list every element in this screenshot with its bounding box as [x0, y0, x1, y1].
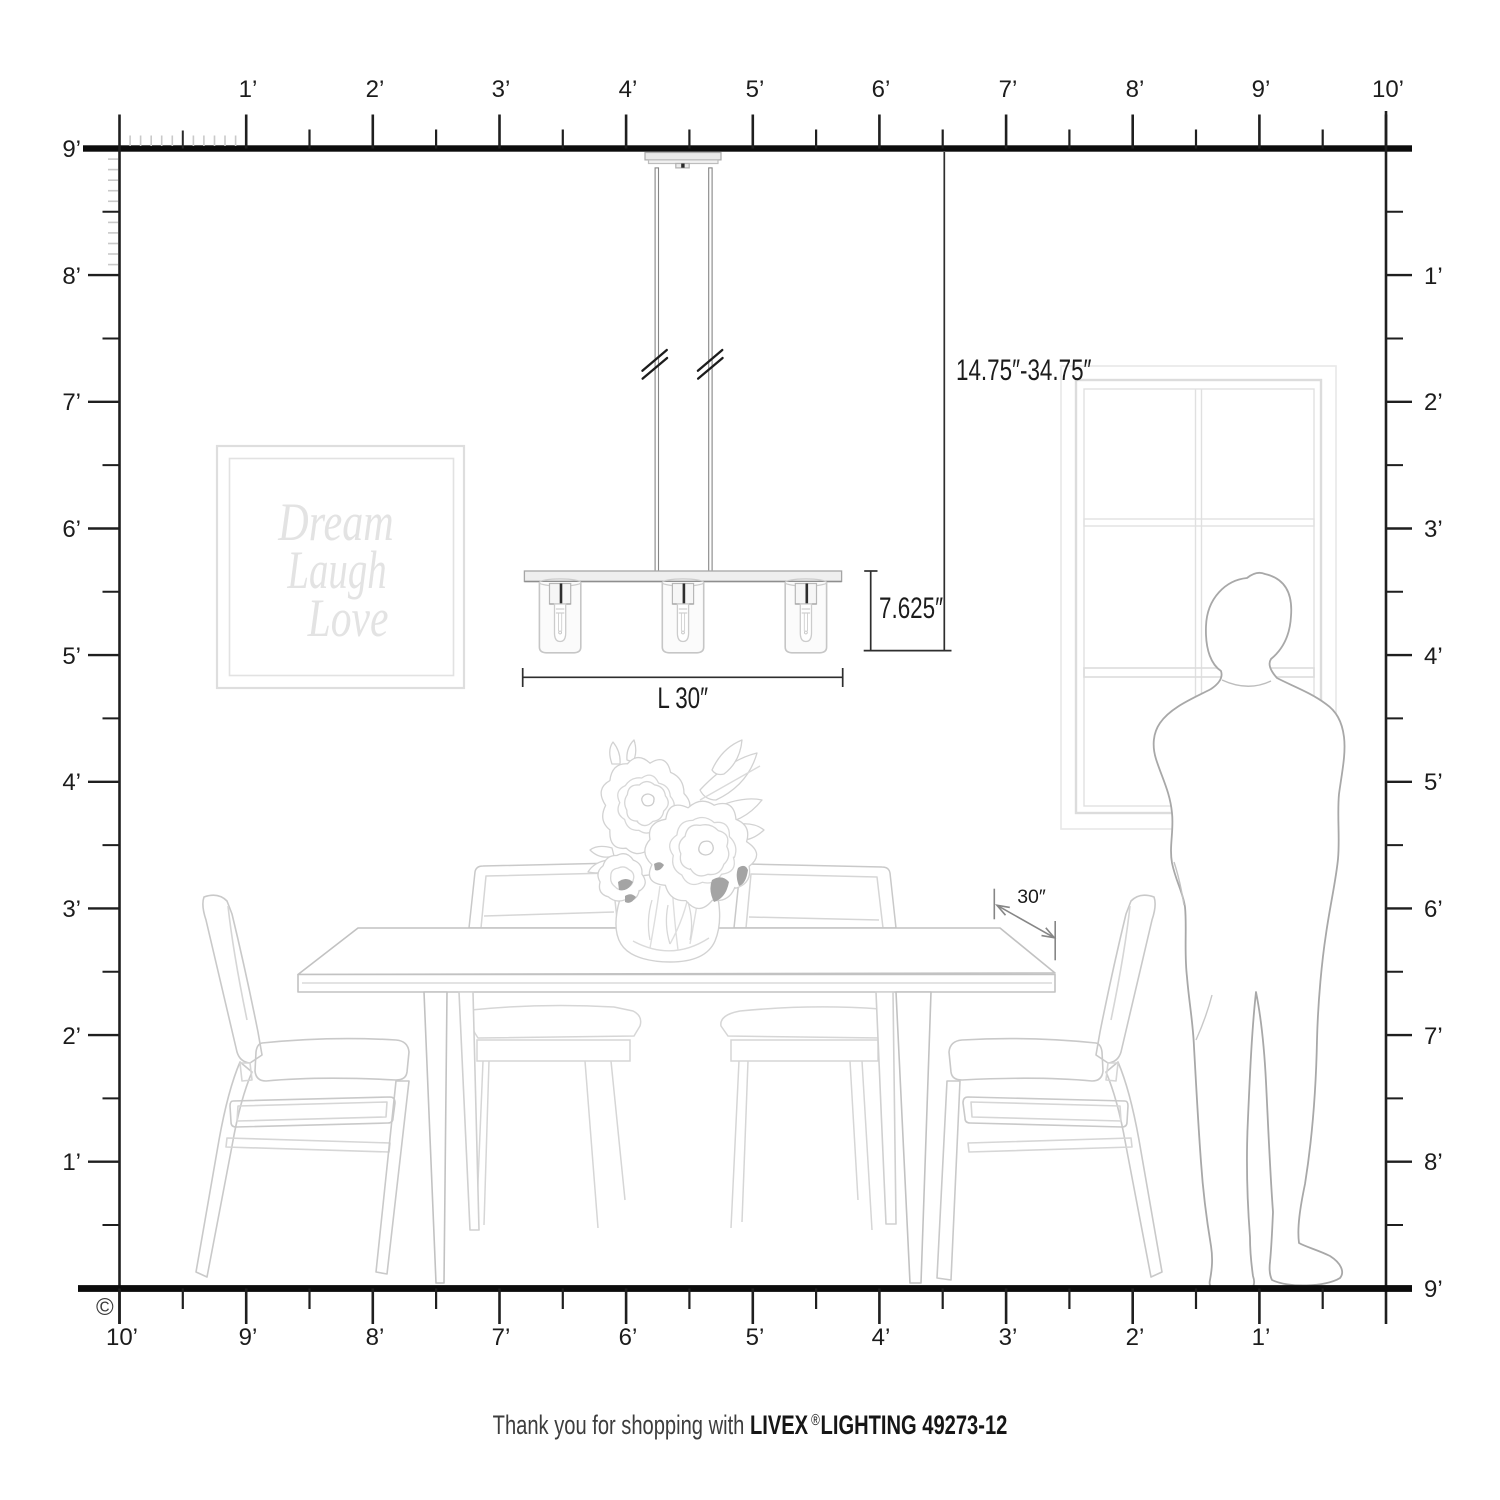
svg-text:L 30″: L 30″ [657, 681, 708, 715]
svg-text:7’: 7’ [492, 1324, 511, 1351]
svg-text:8’: 8’ [62, 263, 81, 290]
svg-text:4’: 4’ [1424, 643, 1443, 670]
svg-text:8’: 8’ [366, 1324, 385, 1351]
svg-text:5’: 5’ [1424, 769, 1443, 796]
svg-text:8’: 8’ [1126, 76, 1145, 103]
svg-text:9’: 9’ [1252, 76, 1271, 103]
svg-text:8’: 8’ [1424, 1149, 1443, 1176]
svg-text:1’: 1’ [1252, 1324, 1271, 1351]
svg-text:4’: 4’ [872, 1324, 891, 1351]
svg-text:30″: 30″ [1017, 886, 1046, 908]
svg-text:6’: 6’ [619, 1324, 638, 1351]
svg-text:7’: 7’ [999, 76, 1018, 103]
svg-text:5’: 5’ [746, 1324, 765, 1351]
svg-text:3’: 3’ [1424, 516, 1443, 543]
svg-text:6’: 6’ [62, 516, 81, 543]
svg-text:6’: 6’ [872, 76, 891, 103]
svg-text:Love: Love [307, 589, 389, 648]
svg-text:3’: 3’ [999, 1324, 1018, 1351]
svg-text:1’: 1’ [1424, 263, 1443, 290]
svg-text:9’: 9’ [239, 1324, 258, 1351]
svg-text:9’: 9’ [1424, 1276, 1443, 1303]
svg-text:1’: 1’ [239, 76, 258, 103]
svg-text:7’: 7’ [1424, 1023, 1443, 1050]
svg-text:©: © [96, 1294, 114, 1321]
svg-text:10’: 10’ [106, 1324, 138, 1351]
svg-text:Thank you for shopping with LI: Thank you for shopping with LIVEX®LIGHTI… [493, 1410, 1008, 1439]
svg-text:4’: 4’ [62, 769, 81, 796]
svg-text:3’: 3’ [492, 76, 511, 103]
svg-text:9’: 9’ [62, 136, 81, 163]
svg-text:4’: 4’ [619, 76, 638, 103]
svg-text:7’: 7’ [62, 389, 81, 416]
svg-text:2’: 2’ [1126, 1324, 1145, 1351]
svg-text:5’: 5’ [62, 643, 81, 670]
svg-text:5’: 5’ [746, 76, 765, 103]
svg-text:1’: 1’ [62, 1149, 81, 1176]
svg-text:6’: 6’ [1424, 896, 1443, 923]
svg-text:3’: 3’ [62, 896, 81, 923]
svg-text:2’: 2’ [62, 1023, 81, 1050]
svg-text:7.625″: 7.625″ [879, 591, 943, 625]
svg-text:14.75″-34.75″: 14.75″-34.75″ [956, 353, 1091, 387]
svg-text:2’: 2’ [1424, 389, 1443, 416]
svg-text:2’: 2’ [366, 76, 385, 103]
svg-text:10’: 10’ [1372, 76, 1404, 103]
